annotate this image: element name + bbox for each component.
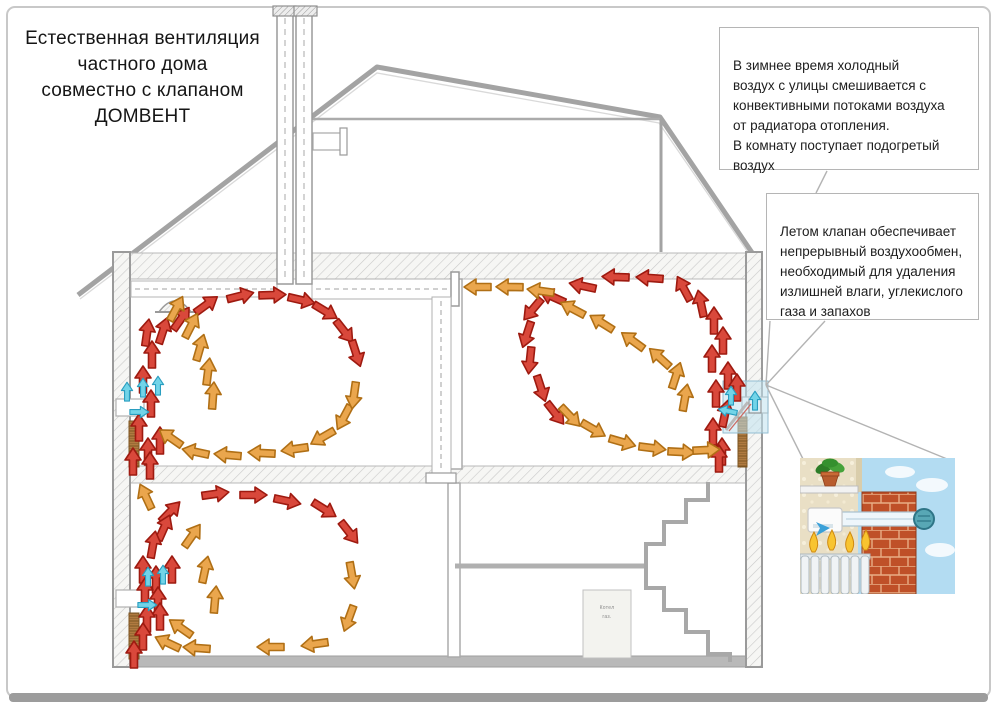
airflow-arrow — [307, 424, 338, 451]
airflow-arrow — [515, 319, 539, 350]
airflow-arrow — [518, 294, 548, 325]
airflow-arrow — [521, 346, 540, 375]
diagram-title: Естественная вентиляция частного дома со… — [10, 26, 275, 130]
airflow-arrow — [181, 441, 211, 462]
title-line-1: Естественная вентиляция — [10, 26, 275, 52]
boiler-label: Котел газ. — [583, 604, 631, 622]
valve-detail-inset — [800, 458, 955, 594]
chimney-cap-left — [273, 6, 296, 16]
airflow-arrow — [133, 481, 159, 512]
summer-callout-box: Летом клапан обеспечивает непрерывный во… — [766, 193, 979, 320]
airflow-arrow — [152, 630, 183, 656]
winter-callout-box: В зимнее время холодный воздух с улицы с… — [719, 27, 979, 170]
airflow-arrow — [300, 634, 329, 654]
inset-radiator — [800, 554, 870, 594]
airflow-arrow — [198, 357, 217, 386]
chimney-cap-right — [294, 6, 317, 16]
airflow-arrow — [194, 555, 215, 585]
valve-inset-illustration — [800, 458, 955, 594]
airflow-arrow — [638, 438, 667, 457]
title-line-3: совместно с клапаном — [10, 78, 275, 104]
airflow-arrow — [644, 343, 675, 373]
airflow-arrow — [708, 380, 724, 407]
airflow-arrow — [705, 418, 721, 445]
airflow-arrow — [529, 373, 553, 404]
airflow-arrow — [496, 279, 523, 295]
airflow-arrow — [309, 495, 340, 523]
airflow-arrow — [240, 487, 267, 503]
airflow-arrow — [257, 639, 284, 655]
staircase — [646, 482, 730, 662]
airflow-arrow — [335, 517, 364, 548]
airflow-arrow — [586, 309, 617, 337]
window-sill — [800, 486, 858, 493]
airflow-arrow — [704, 345, 720, 372]
airflow-arrow — [706, 307, 722, 334]
title-line-4: ДОМВЕНТ — [10, 104, 275, 130]
airflow-arrow — [273, 490, 303, 511]
airflow-arrow — [690, 289, 711, 319]
airflow-arrow — [178, 520, 207, 551]
airflow-arrow — [152, 376, 163, 395]
airflow-arrow — [464, 279, 491, 295]
airflow-arrow — [189, 332, 212, 362]
airflow-arrow — [578, 416, 609, 443]
airflow-arrow — [675, 383, 695, 412]
outside-grille — [914, 509, 934, 529]
airflow-arrow — [337, 603, 361, 634]
summer-callout-text: Летом клапан обеспечивает непрерывный во… — [780, 224, 963, 319]
airflow-arrow — [280, 439, 309, 459]
airflow-arrow — [607, 431, 637, 454]
airflow-arrow — [342, 561, 362, 590]
airflow-arrow — [248, 444, 276, 461]
ventilation-scheme-page: Естественная вентиляция частного дома со… — [0, 0, 997, 707]
winter-callout-text: В зимнее время холодный воздух с улицы с… — [733, 58, 945, 173]
title-line-2: частного дома — [10, 52, 275, 78]
airflow-arrow — [201, 484, 230, 504]
airflow-arrow — [206, 585, 224, 613]
airflow-arrow — [344, 338, 368, 369]
boiler-box — [583, 590, 631, 658]
airflow-arrow — [165, 613, 196, 642]
airflow-arrow — [213, 446, 241, 464]
attic-duct-stub — [313, 133, 341, 150]
airflow-arrow — [182, 639, 210, 657]
chimney — [273, 6, 347, 284]
airflow-arrow — [617, 326, 648, 355]
ceiling-exhaust-duct-left — [131, 281, 277, 297]
wall-exhaust-duct-vertical — [426, 297, 456, 483]
airflow-arrow — [668, 443, 696, 460]
